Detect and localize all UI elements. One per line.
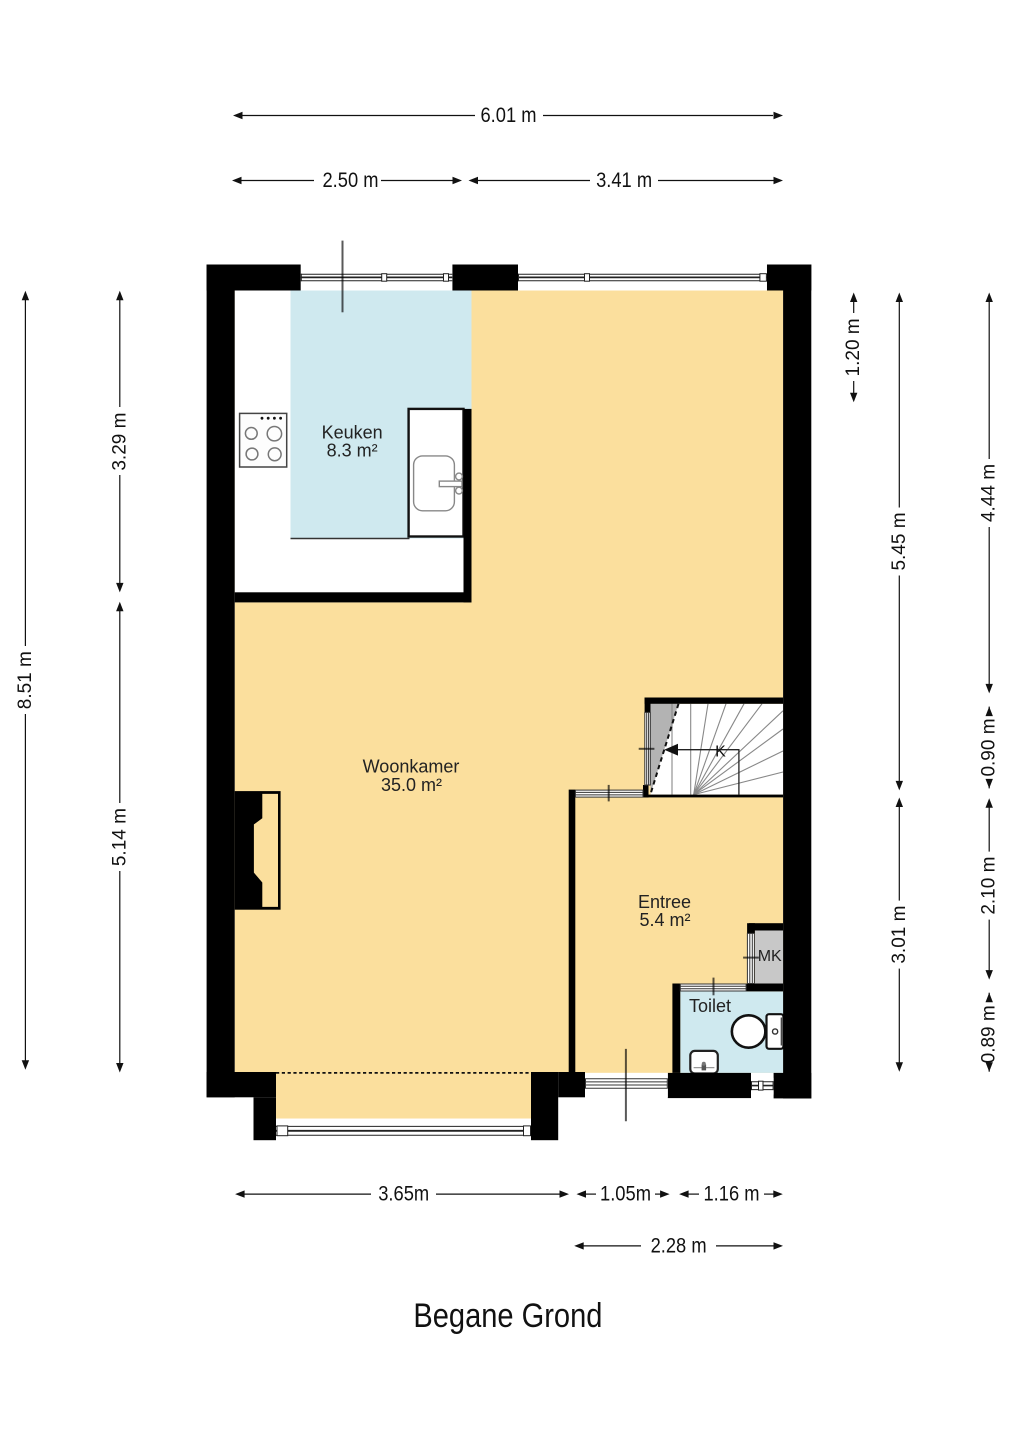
svg-text:Begane Grond: Begane Grond: [413, 1297, 602, 1335]
svg-text:0.90 m: 0.90 m: [979, 718, 1000, 776]
svg-text:8.51 m: 8.51 m: [15, 651, 36, 709]
svg-text:3.29 m: 3.29 m: [109, 413, 130, 471]
svg-text:1.20 m: 1.20 m: [843, 318, 864, 376]
svg-text:2.10 m: 2.10 m: [979, 857, 1000, 915]
svg-text:5.45 m: 5.45 m: [889, 512, 910, 570]
svg-text:8.3 m²: 8.3 m²: [327, 441, 378, 461]
svg-text:Toilet: Toilet: [689, 996, 731, 1016]
svg-text:2.28 m: 2.28 m: [651, 1234, 707, 1257]
svg-text:1.05m: 1.05m: [600, 1183, 651, 1206]
svg-text:1.16 m: 1.16 m: [704, 1183, 760, 1206]
svg-text:K: K: [715, 743, 726, 760]
svg-text:3.01 m: 3.01 m: [889, 906, 910, 964]
svg-text:6.01 m: 6.01 m: [481, 104, 537, 127]
svg-text:5.4 m²: 5.4 m²: [639, 910, 690, 930]
svg-text:0.89 m: 0.89 m: [979, 1005, 1000, 1063]
svg-text:3.41 m: 3.41 m: [596, 169, 652, 192]
svg-text:35.0 m²: 35.0 m²: [381, 775, 442, 795]
svg-text:Woonkamer: Woonkamer: [363, 757, 460, 777]
svg-text:4.44 m: 4.44 m: [979, 464, 1000, 522]
svg-text:5.14 m: 5.14 m: [109, 808, 130, 866]
svg-text:2.50 m: 2.50 m: [323, 169, 379, 192]
svg-text:3.65m: 3.65m: [378, 1183, 429, 1206]
svg-text:MK: MK: [758, 948, 782, 965]
